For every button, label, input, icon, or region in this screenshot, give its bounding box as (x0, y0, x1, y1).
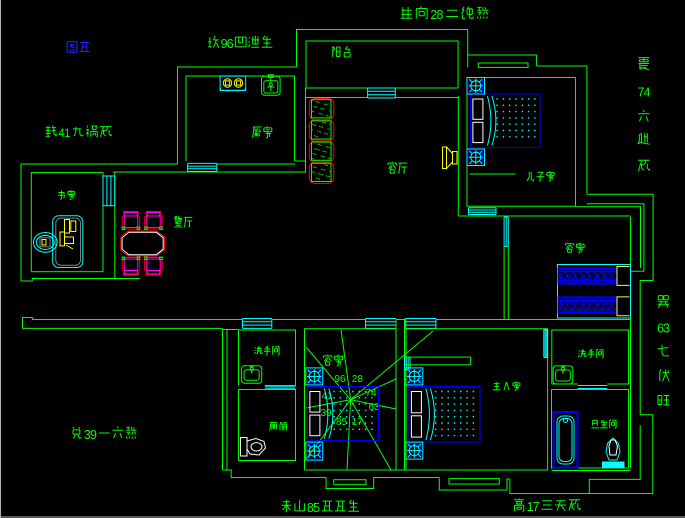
svg-text:85: 85 (336, 417, 348, 428)
svg-text:74: 74 (638, 85, 651, 99)
svg-text:28: 28 (430, 8, 443, 22)
svg-text:85: 85 (307, 501, 320, 515)
svg-text:39: 39 (321, 408, 333, 419)
svg-text:63: 63 (657, 321, 670, 335)
svg-text:17: 17 (527, 500, 540, 514)
svg-text:28: 28 (352, 374, 364, 385)
svg-text:96: 96 (221, 37, 234, 51)
svg-text:96: 96 (335, 374, 347, 385)
svg-text:41: 41 (58, 128, 70, 140)
svg-text:39: 39 (84, 428, 97, 442)
